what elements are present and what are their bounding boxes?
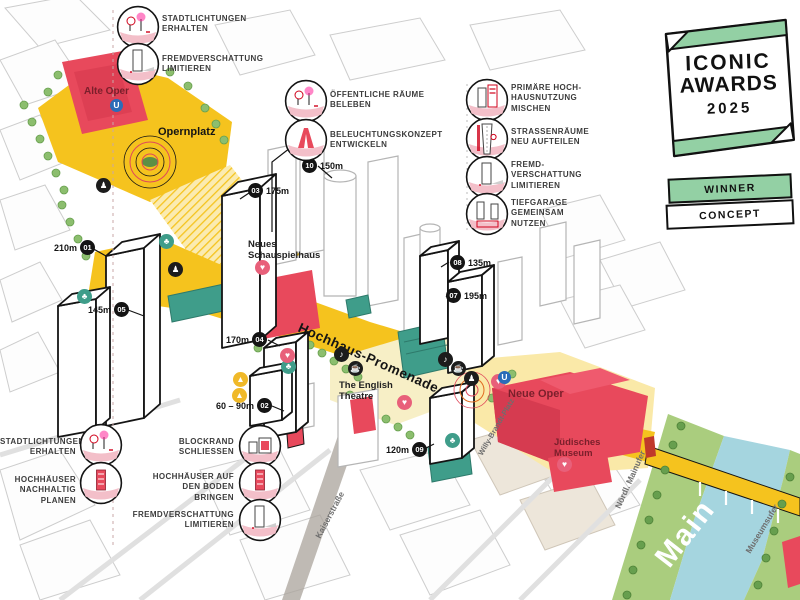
iconic-awards-badge: ICONIC AWARDS 2025 <box>659 14 798 169</box>
proposed-towers <box>58 174 494 464</box>
annotation-label: STRASSENRÄUME NEU AUFTEILEN <box>511 127 621 148</box>
marker-number: 01 <box>80 240 95 255</box>
height-marker-170m: 170m 04 <box>226 332 267 347</box>
play-icon: ▲ <box>232 388 247 403</box>
english-theatre-label: The English Theatre <box>339 381 393 403</box>
tree-icon: ♣ <box>77 289 92 304</box>
ubahn-icon: U <box>498 371 511 384</box>
pedestrian-icon: ♟ <box>168 262 183 277</box>
play-icon: ▲ <box>233 372 248 387</box>
height-marker-175m: 03 175m <box>248 183 289 198</box>
garage-icon <box>465 192 509 236</box>
marker-number: 02 <box>257 398 272 413</box>
cafe-icon: ☕ <box>348 361 363 376</box>
annotation-label: HOCHHÄUSER NACHHALTIG PLANEN <box>0 475 76 506</box>
culture-icon: ♥ <box>557 457 572 472</box>
height-marker-195m: 07 195m <box>446 288 487 303</box>
annotation-label: FREMDVERSCHATTUNG LIMITIEREN <box>162 54 312 75</box>
height-marker-120m: 120m 09 <box>386 442 427 457</box>
pedestrian-icon: ♟ <box>464 371 479 386</box>
culture-icon: ♥ <box>255 260 270 275</box>
annotation-label: FREMDVERSCHATTUNG LIMITIEREN <box>126 510 234 531</box>
shadow-tower-icon <box>238 498 282 542</box>
music-icon: ♪ <box>334 347 349 362</box>
marker-number: 03 <box>248 183 263 198</box>
opernplatz-label: Opernplatz <box>158 126 215 139</box>
culture-icon: ♥ <box>280 348 295 363</box>
marker-number: 08 <box>450 255 465 270</box>
public-space-icon <box>284 79 328 123</box>
annotation-label: HOCHHÄUSER AUF DEN BODEN BRINGEN <box>148 472 234 503</box>
annotation-label: STADTLICHTUNGEN ERHALTEN <box>0 437 76 458</box>
marker-number: 07 <box>446 288 461 303</box>
tower-195m <box>448 265 494 373</box>
alte-oper-label: Alte Oper <box>84 86 129 98</box>
culture-icon: ♥ <box>397 395 412 410</box>
lighting-icon <box>284 118 328 162</box>
height-marker-135m: 08 135m <box>450 255 491 270</box>
neue-oper-label: Neue Oper <box>508 388 564 401</box>
annotation-label: STADTLICHTUNGEN ERHALTEN <box>162 14 312 35</box>
award-title: ICONIC AWARDS 2025 <box>661 50 797 120</box>
tower-210m <box>106 234 160 426</box>
annotation-label: FREMD- VERSCHATTUNG LIMITIEREN <box>511 160 621 191</box>
masterplan-diagram: Alte Oper Opernplatz Neues Schauspielhau… <box>0 0 800 600</box>
neues-schauspielhaus-label: Neues Schauspielhaus <box>248 240 320 262</box>
sustainable-tower-icon <box>79 461 123 505</box>
marker-number: 04 <box>252 332 267 347</box>
marker-number: 09 <box>412 442 427 457</box>
cafe-icon: ☕ <box>451 361 466 376</box>
ubahn-icon: U <box>110 99 123 112</box>
height-marker-145m: 145m 05 <box>88 302 129 317</box>
pedestrian-icon: ♟ <box>96 178 111 193</box>
marker-number: 05 <box>114 302 129 317</box>
annotation-label: TIEFGARAGE GEMEINSAM NUTZEN <box>511 198 621 229</box>
height-marker-210m: 210m 01 <box>54 240 95 255</box>
mixed-use-icon <box>465 78 509 122</box>
annotation-label: BLOCKRAND SCHLIESSEN <box>148 437 234 458</box>
shadow-tower-icon <box>116 42 160 86</box>
tree-icon: ♣ <box>159 234 174 249</box>
annotation-label: ÖFFENTLICHE RÄUME BELEBEN <box>330 90 480 111</box>
tree-icon: ♣ <box>445 433 460 448</box>
award-title-line2: AWARDS <box>661 72 796 99</box>
annotation-label: PRIMÄRE HOCH- HAUSNUTZUNG MISCHEN <box>511 83 621 114</box>
